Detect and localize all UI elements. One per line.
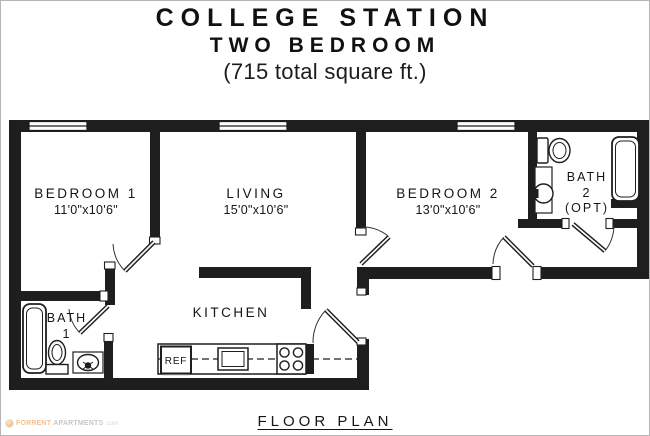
wall-bottom-exterior (9, 378, 369, 390)
window-bedroom2 (457, 122, 515, 131)
kitchen-label: KITCHEN (193, 305, 270, 320)
window-bedroom1 (29, 122, 87, 131)
door-entry (313, 310, 358, 343)
jamb-living-divider (356, 228, 367, 235)
door-bedroom1 (113, 242, 154, 271)
toilet-bath1 (46, 341, 68, 375)
bedroom1-dimensions: 11'0"x10'6" (54, 203, 118, 217)
wall-bath1-right (104, 341, 113, 378)
bathtub-bath1 (23, 304, 46, 373)
bedroom1-label: BEDROOM 1 (34, 186, 138, 201)
bathtub-bath2 (612, 137, 639, 201)
wall-bedroom2-bottom-right (534, 267, 649, 279)
wall-kitchen-peninsula-vertical (301, 267, 311, 309)
sink-bath2 (534, 167, 553, 213)
bedroom2-label: BEDROOM 2 (396, 186, 500, 201)
bedroom2-dimensions: 13'0"x10'6" (416, 203, 481, 217)
wall-bedroom1-living-divider (150, 120, 160, 239)
bath1-number: 1 (63, 327, 72, 341)
wall-top-exterior (9, 120, 649, 132)
floor-plan-drawing: BEDROOM 1 11'0"x10'6" LIVING 15'0"x10'6"… (1, 1, 650, 436)
jamb-bedroom2-door-left (492, 267, 500, 280)
jamb-entry-top (357, 288, 366, 295)
kitchen-sink (218, 348, 248, 370)
bath1-label: BATH (47, 311, 87, 325)
refrigerator-label: REF (165, 356, 187, 367)
floor-plan-caption: FLOOR PLAN (1, 413, 649, 430)
wall-kitchen-peninsula-horizontal (199, 267, 311, 278)
sink-bath1 (73, 352, 103, 373)
bath2-number: 2 (583, 186, 592, 200)
wall-left-exterior (9, 120, 21, 390)
wall-bath2-bottom-left (518, 219, 569, 228)
bath2-label: BATH (567, 170, 607, 184)
window-living (219, 122, 287, 131)
door-jambs (100, 219, 613, 346)
bath2-optional-note: (OPT) (565, 201, 609, 215)
wall-bedroom2-bottom-left (357, 267, 500, 279)
living-dimensions: 15'0"x10'6" (224, 203, 289, 217)
room-labels: BEDROOM 1 11'0"x10'6" LIVING 15'0"x10'6"… (34, 170, 609, 367)
jamb-bath1-top (100, 291, 108, 301)
door-bedroom2 (493, 237, 533, 266)
wall-bath1-top (21, 291, 107, 301)
toilet-bath2 (537, 138, 570, 163)
wall-living-bedroom2-divider (356, 120, 366, 230)
jamb-bath2-door-left (562, 219, 569, 229)
floor-plan-page: COLLEGE STATION TWO BEDROOM (715 total s… (0, 0, 650, 436)
jamb-bath1-lower (104, 334, 113, 342)
jamb-bath2-door-right (606, 219, 613, 229)
living-label: LIVING (226, 186, 285, 201)
stove (277, 344, 306, 374)
jamb-bedroom2-door-right (533, 267, 541, 280)
jamb-hall-stub (105, 262, 116, 269)
